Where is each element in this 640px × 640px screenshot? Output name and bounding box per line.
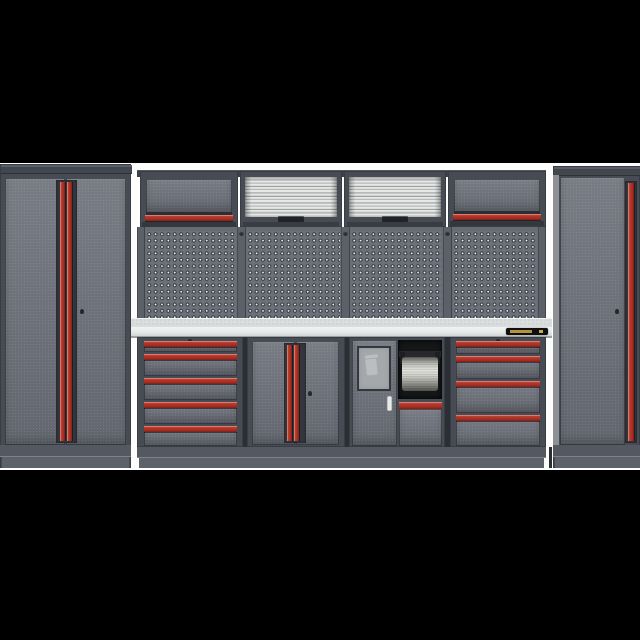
base-run-kick <box>137 447 546 457</box>
base-door-handle-right <box>294 345 299 441</box>
brand-label-gold-mark <box>539 330 543 334</box>
pegboard-upright-1 <box>137 227 145 320</box>
right-locker-handle <box>628 183 634 441</box>
right-locker-top-cap <box>554 167 640 176</box>
left-locker-handle-right <box>67 182 72 441</box>
drawer5-handle-5 <box>144 426 237 432</box>
pegboard-upright-3 <box>341 227 350 320</box>
utility-drawer-front <box>399 409 442 446</box>
product-photo <box>0 0 640 640</box>
wall-cabinet-left-door <box>146 179 232 213</box>
pegboard-panel-2 <box>247 231 340 320</box>
wall-cabinet-left-handle <box>145 215 233 221</box>
drawer4-handle-2 <box>456 356 540 362</box>
roller-shutter-slats-1 <box>245 177 337 217</box>
base-door-handle-left <box>287 345 292 441</box>
drawer4-handle-3 <box>456 381 540 387</box>
pegboard-panel-4 <box>453 231 537 320</box>
right-locker-side-edge <box>553 175 559 445</box>
drawer5-handle-2 <box>144 354 237 360</box>
drawer4-handle-1 <box>456 341 540 347</box>
right-locker-plinth <box>555 457 640 468</box>
drawer5-handle-1 <box>144 341 237 347</box>
pegboard-panel-1 <box>146 231 236 320</box>
worktop-surface <box>131 318 552 327</box>
brand-label <box>506 328 548 335</box>
door-strip-handle <box>387 396 392 411</box>
keyhole-icon <box>80 309 84 314</box>
letterbox-top <box>0 0 640 163</box>
drawer5-handle-3 <box>144 378 237 384</box>
paper-towel-roll <box>402 357 438 391</box>
keyhole-icon <box>308 391 312 396</box>
pegboard-upright-2 <box>237 227 246 320</box>
recycle-bin-icon <box>365 358 378 375</box>
pegboard-panel-3 <box>351 231 442 320</box>
pegboard-upright-4 <box>443 227 452 320</box>
left-locker-plinth <box>2 457 129 468</box>
roller-shutter-slats-2 <box>349 177 441 217</box>
bolt-icon-1 <box>239 231 244 236</box>
keyhole-icon <box>615 309 619 314</box>
frosted-window <box>357 346 391 391</box>
bolt-icon-3 <box>445 231 450 236</box>
letterbox-bottom <box>0 470 640 640</box>
utility-drawer-handle <box>399 402 442 409</box>
base-run-plinth <box>139 458 544 468</box>
wall-cabinet-right-handle <box>453 214 541 220</box>
left-locker-top-cap <box>1 165 132 174</box>
pegboard-upright-5 <box>538 227 546 320</box>
bolt-icon-2 <box>343 231 348 236</box>
drawer5-handle-4 <box>144 402 237 408</box>
wall-cabinet-right-bottom-rail <box>450 221 544 226</box>
wall-cabinet-right-door <box>454 179 540 213</box>
worktop-front-edge <box>131 327 552 336</box>
plinth-gap <box>549 447 552 468</box>
drawer4-handle-4 <box>456 415 540 421</box>
brand-label-gold-text <box>510 330 532 333</box>
left-locker-handle-left <box>60 182 65 441</box>
